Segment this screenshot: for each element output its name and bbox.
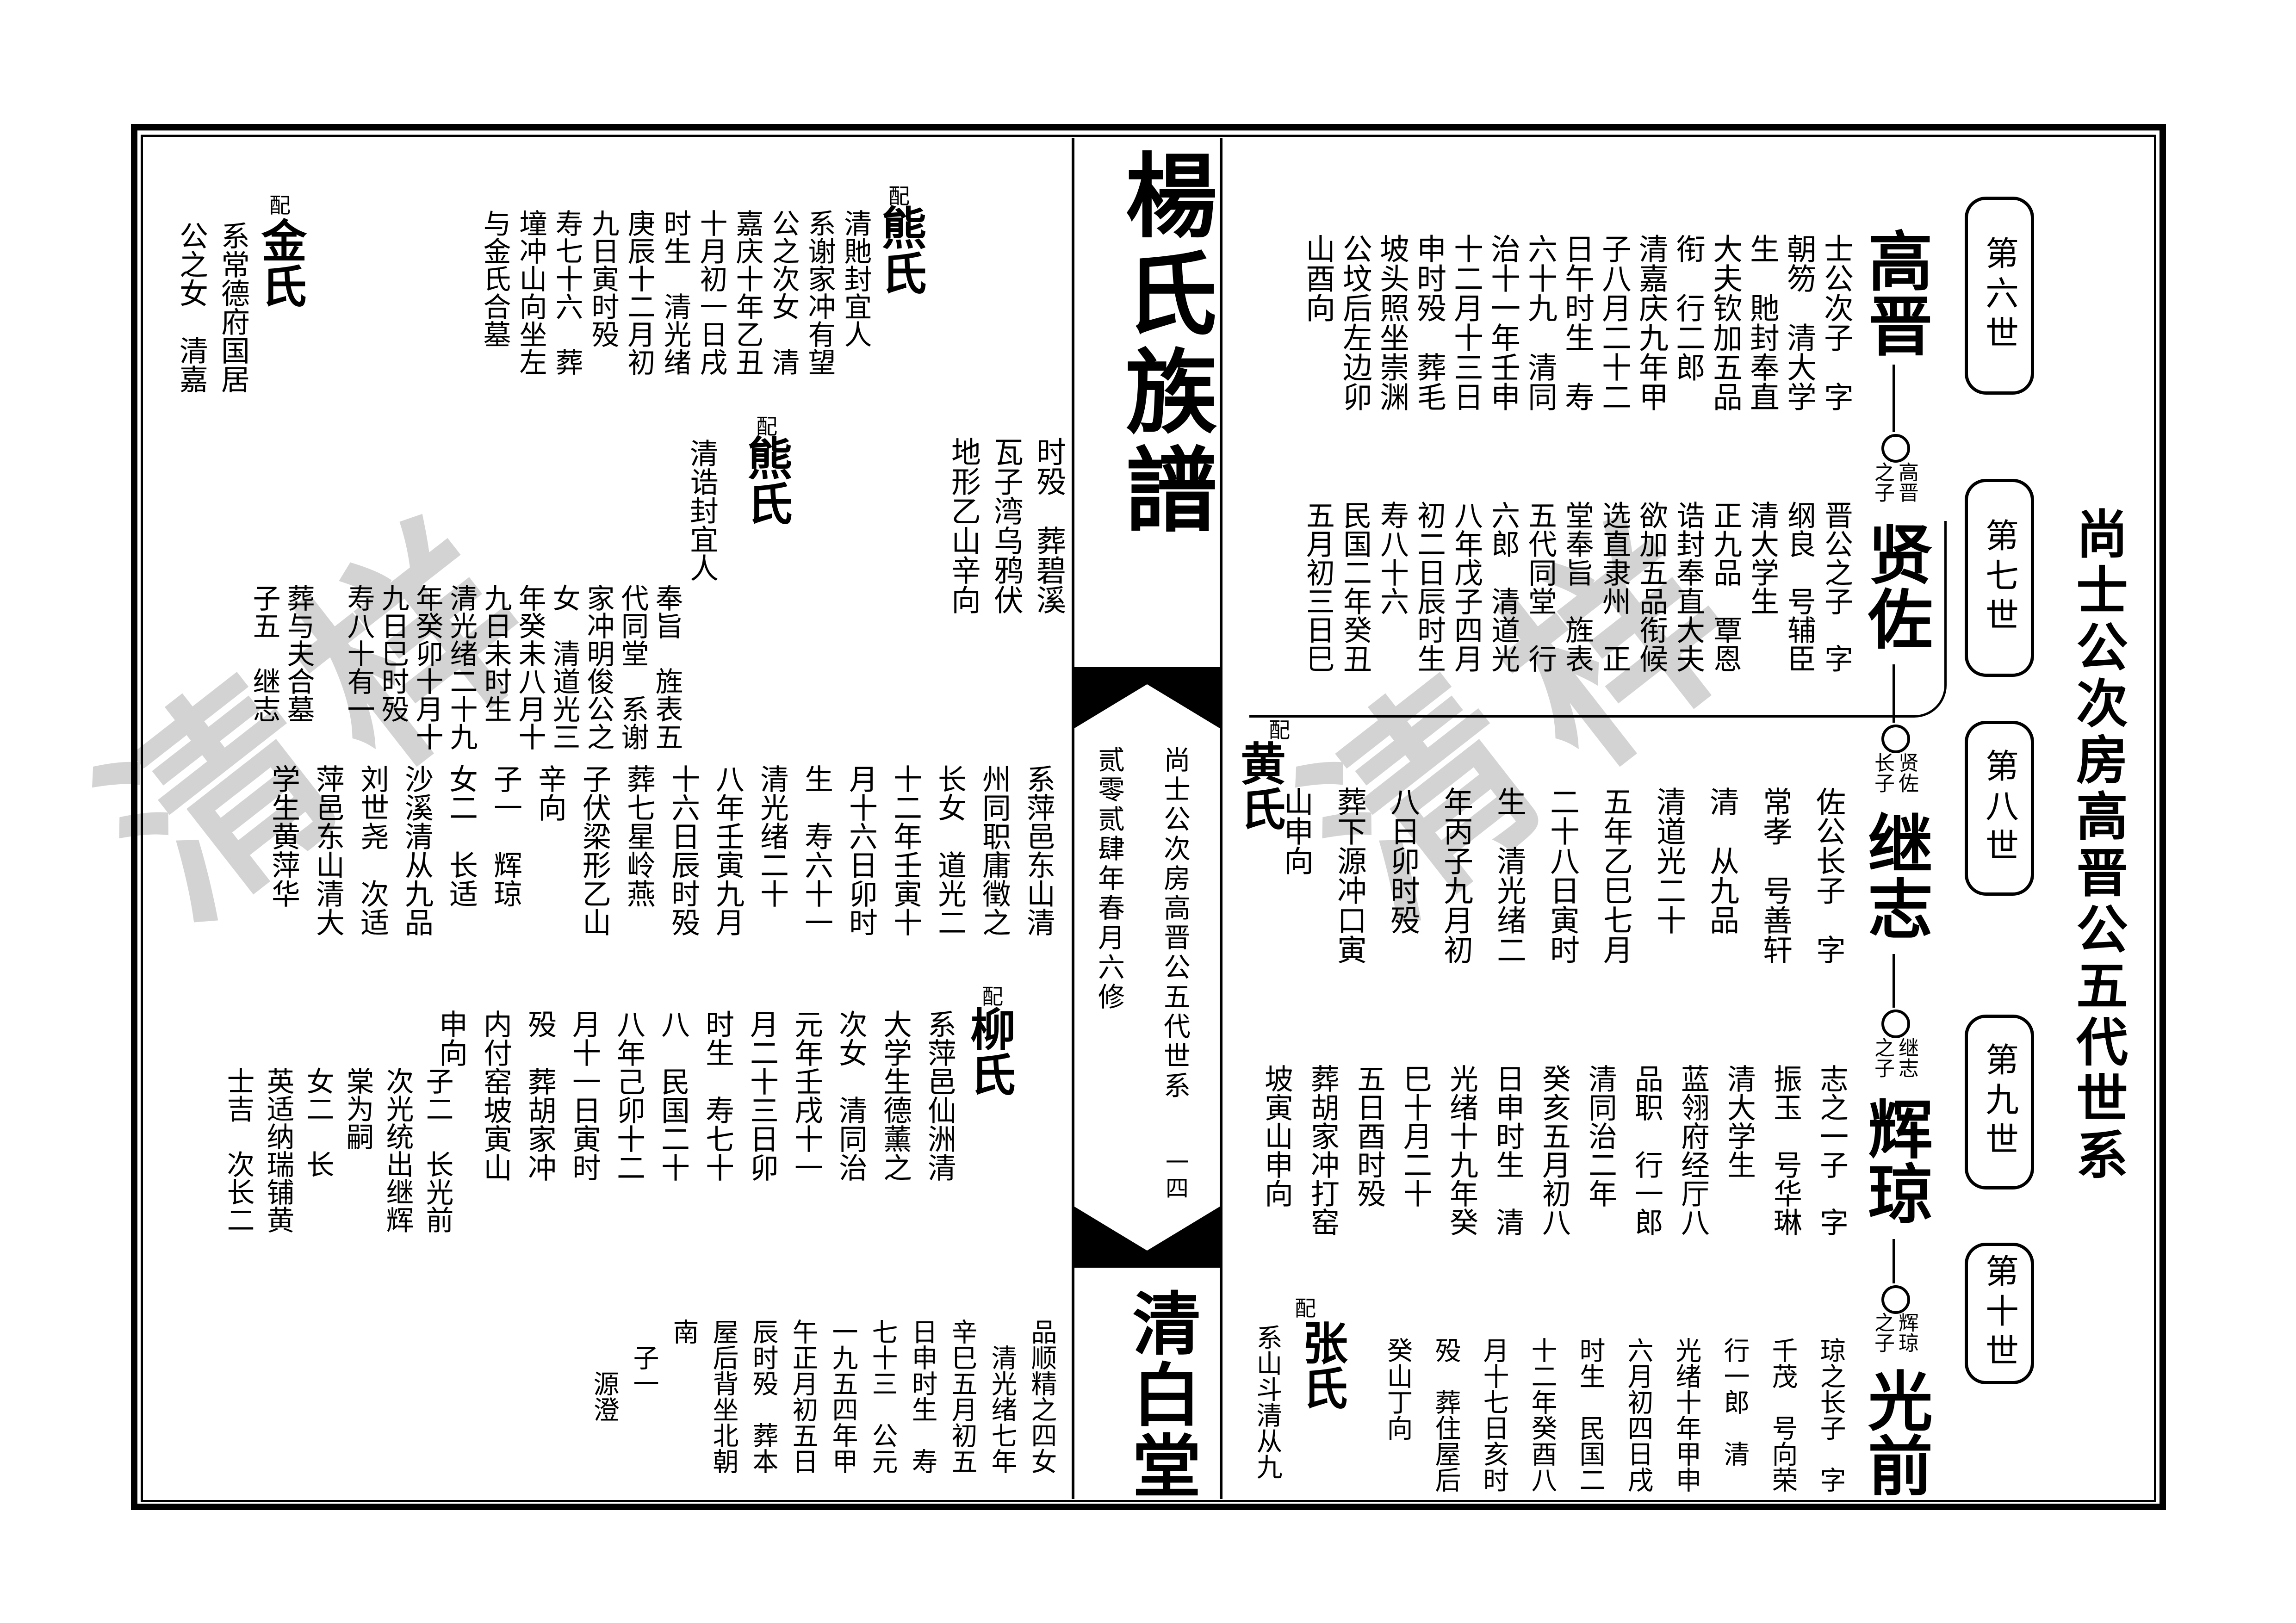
spouse-name-zhang: 张氏: [1298, 1319, 1344, 1410]
descent-node-circle: [1881, 1285, 1910, 1314]
generation-box-8: 第八世: [1965, 721, 2034, 896]
ancestor-name-guangqian: 光前: [1858, 1368, 1929, 1497]
descent-line: [1893, 365, 1895, 432]
spine-section-and-edition: 尚士公次房高晋公五代世系 贰零贰肆年春月六修: [1076, 746, 1208, 1125]
entry-jin: 系常德府国居 公之女 清嘉: [170, 221, 254, 462]
side-title: 尚士公次房高晋公五代世系: [2060, 507, 2135, 1184]
spouse-name-xiong1: 熊氏: [877, 204, 923, 295]
burial-note: 时殁 葬碧溪 瓦子湾乌鸦伏 地形乙山辛向: [942, 437, 1070, 696]
spouse-name-huang: 黄氏: [1236, 740, 1282, 831]
hall-name: 清白堂: [1111, 1288, 1211, 1502]
generation-label: 第十世: [1975, 1254, 2024, 1373]
spouse-prefix: 配: [1295, 1292, 1316, 1322]
relation-label: 贤佐长子: [1870, 752, 1918, 801]
genealogy-page: 清样 清样 楊氏族譜 尚士公次房高晋公五代世系 贰零贰肆年春月六修 一四 清白堂…: [0, 0, 2296, 1623]
book-title: 楊氏族譜: [1098, 148, 1230, 540]
spine-rule-left: [1072, 138, 1074, 1499]
generation-box-9: 第九世: [1965, 1015, 2034, 1189]
entry-liu: 系萍邑仙洲清 大学生德薰之 次女 清同治 元年壬戌十一 月二十三日卯 时生 寿七…: [428, 1010, 962, 1264]
descent-node-circle: [1881, 1010, 1910, 1038]
generation-box-7: 第七世: [1965, 479, 2034, 677]
ancestor-name-huiqiong: 辉琼: [1858, 1096, 1929, 1225]
spouse-name-liu: 柳氏: [966, 1006, 1011, 1096]
entry-huang-detail: 系萍邑东山清 州同职庸徵之 长女 道光二 十二年壬寅十 月十六日卯时 生 寿六十…: [261, 764, 1061, 1028]
spouse-prefix: 配: [1269, 713, 1290, 744]
relation-label: 高晋之子: [1870, 462, 1918, 511]
entry-zhang: 系山斗清从九: [1252, 1324, 1282, 1503]
generation-box-10: 第十世: [1965, 1243, 2034, 1384]
descent-line: [1893, 954, 1895, 1008]
ancestor-name-xianzuo: 贤佐: [1858, 521, 1929, 650]
entry-jizhi: 佐公长子 字 常孝 号善轩 清 从九品 清道光二十 五年乙巳七月 二十八日寅时 …: [1269, 787, 1855, 1046]
entry-gaojin: 士公次子 字 朝笏 清大学 生 貤封奉直 大夫钦加五品 衔 行二郎 清嘉庆九年甲…: [1299, 234, 1855, 502]
entry-xianzuo: 晋公之子 字 纲良 号辅臣 清大学生 正九品 覃恩 诰封奉直大夫 欲加五品衔候 …: [1299, 501, 1855, 750]
relation-label: 继志之子: [1870, 1037, 1918, 1086]
entry-xiong1: 清貤封宜人 系谢家冲有望 公之次女 清 嘉庆十年乙丑 十月初一日戌 时生 清光绪…: [477, 209, 874, 468]
generation-label: 第九世: [1975, 1042, 2024, 1162]
entry-zhang-detail: 品顺精之四女 清光绪七年 辛巳五月初五 日申时生 寿 七十三 公元 一九五四年甲…: [584, 1319, 1061, 1497]
entry-huiqiong: 志之一子 字 振玉 号华琳 清大学生 蓝翎府经厅八 品职 行一郎 清同治二年 癸…: [1253, 1064, 1855, 1314]
descent-line: [1893, 1239, 1895, 1283]
relation-label: 辉琼之子: [1870, 1312, 1918, 1361]
spouse-name-jin: 金氏: [257, 217, 303, 308]
descent-node-circle: [1881, 725, 1910, 753]
spouse-name-xiong2: 熊氏: [743, 435, 788, 526]
generation-label: 第六世: [1975, 236, 2024, 355]
generation-box-6: 第六世: [1965, 197, 2034, 395]
generation-label: 第八世: [1975, 749, 2024, 868]
entry-guangqian: 琼之长子 字 千茂 号向荣 行一郎 清 光绪十年甲申 六月初四日戌 时生 民国二…: [1373, 1337, 1855, 1499]
page-number: 一四: [1159, 1150, 1192, 1202]
spouse-prefix: 配: [269, 189, 291, 219]
generation-label: 第七世: [1975, 518, 2024, 638]
ancestor-name-jizhi: 继志: [1858, 811, 1929, 940]
descent-line: [1893, 664, 1895, 723]
entry-xiong2: 清诰封宜人: [683, 439, 720, 670]
descent-node-circle: [1881, 434, 1910, 463]
entry-liu-children: 子二 长光前 次光统出继辉 棠为嗣 女二 长 英适纳瑞铺黄 士吉 次长二: [218, 1067, 457, 1252]
ancestor-name-gaojin: 高晋: [1858, 228, 1929, 357]
